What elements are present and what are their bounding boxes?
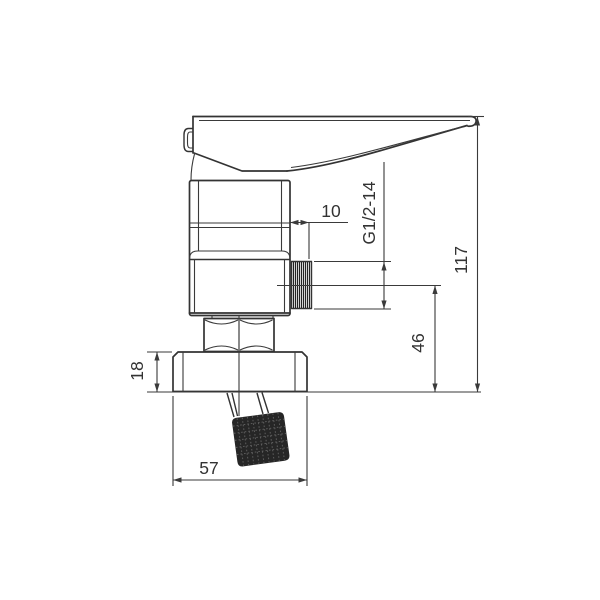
mounting-flange bbox=[173, 352, 307, 392]
inlet-neck bbox=[227, 393, 269, 418]
faucet-outline bbox=[173, 117, 476, 466]
dim-label-outlet-length: 10 bbox=[321, 201, 341, 221]
dimension-outlet-length: 10 bbox=[290, 201, 348, 259]
drawing-canvas: 10 G1/2-14 117 46 18 57 bbox=[0, 0, 600, 600]
dimension-outlet-height: 46 bbox=[408, 286, 438, 393]
dimension-flange-thickness: 18 bbox=[127, 352, 172, 392]
handle-lever bbox=[191, 117, 476, 181]
dim-label-overall-height: 117 bbox=[451, 246, 471, 274]
dim-label-flange-thickness: 18 bbox=[127, 361, 147, 380]
handle-cap bbox=[184, 129, 193, 152]
dimension-overall-height: 117 bbox=[451, 117, 484, 393]
dimension-outlet-thread: G1/2-14 bbox=[314, 162, 391, 309]
dim-label-outlet-thread: G1/2-14 bbox=[359, 181, 379, 244]
dim-label-outlet-height: 46 bbox=[408, 333, 428, 352]
cartridge-body bbox=[190, 181, 291, 319]
technical-drawing: 10 G1/2-14 117 46 18 57 bbox=[0, 0, 600, 600]
dim-label-flange-width: 57 bbox=[199, 458, 218, 478]
inlet-pipe-thread bbox=[233, 413, 289, 466]
